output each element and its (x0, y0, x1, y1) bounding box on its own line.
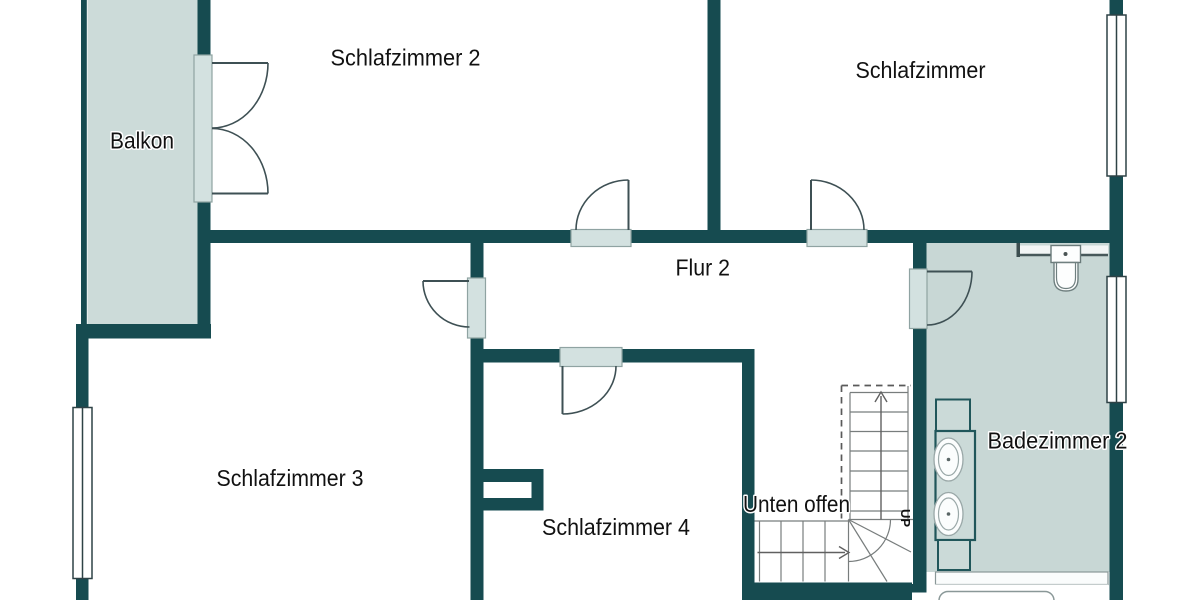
svg-text:Schlafzimmer 4: Schlafzimmer 4 (542, 514, 690, 540)
svg-text:Unten offen: Unten offen (743, 491, 850, 517)
svg-text:Badezimmer 2: Badezimmer 2 (988, 428, 1128, 454)
svg-text:Schlafzimmer: Schlafzimmer (856, 57, 986, 83)
svg-text:Schlafzimmer 2: Schlafzimmer 2 (331, 45, 481, 71)
svg-text:Flur 2: Flur 2 (676, 255, 731, 281)
svg-text:UP: UP (898, 509, 913, 527)
svg-text:Balkon: Balkon (110, 128, 174, 154)
svg-text:Schlafzimmer 3: Schlafzimmer 3 (217, 465, 364, 491)
